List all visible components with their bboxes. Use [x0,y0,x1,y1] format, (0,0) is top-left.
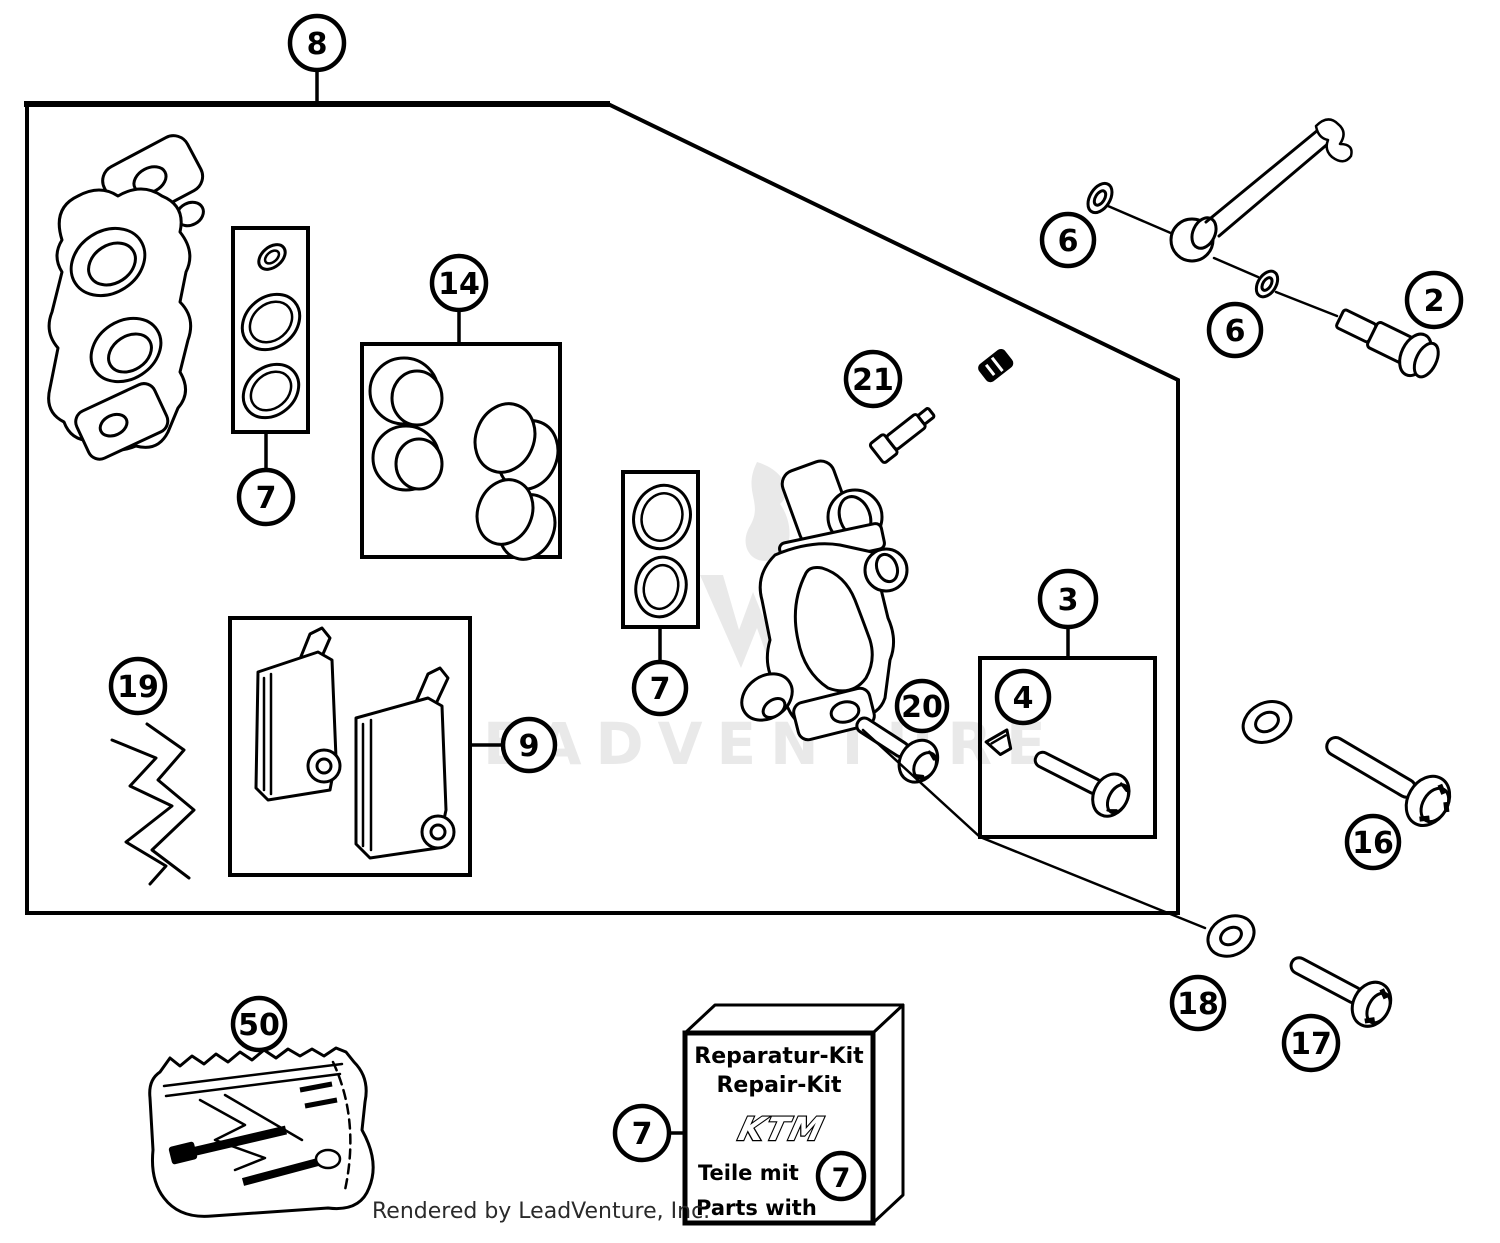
svg-text:7: 7 [832,1163,851,1194]
callout-2[interactable]: 2 [1407,273,1461,327]
callout-7-kit-badge: 7 [818,1153,864,1199]
kit-title-de: Reparatur-Kit [694,1044,864,1069]
svg-text:7: 7 [256,481,277,516]
callout-3[interactable]: 3 [1040,571,1096,627]
bleed-valve-drawing [869,402,938,463]
svg-text:6: 6 [1225,314,1246,349]
callout-19[interactable]: 19 [111,659,165,713]
callout-17[interactable]: 17 [1284,1016,1338,1070]
callout-16[interactable]: 16 [1347,816,1399,868]
callout-9[interactable]: 9 [503,719,555,771]
piston-box-14 [362,344,568,568]
svg-text:14: 14 [438,267,480,302]
seal-box-7-center [623,472,699,627]
svg-text:20: 20 [901,690,943,725]
seal-box-7-left [231,228,311,432]
watermark-text: EADVENTURE [483,710,1060,778]
credit-text: Rendered by LeadVenture, Inc. [372,1199,710,1224]
callout-7-left[interactable]: 7 [239,470,293,524]
svg-text:19: 19 [117,670,159,705]
svg-text:8: 8 [307,27,328,62]
callout-18[interactable]: 18 [1172,977,1224,1029]
valve-cap-drawing [977,347,1015,383]
callout-6-lower[interactable]: 6 [1209,304,1261,356]
callout-21[interactable]: 21 [846,352,900,406]
brake-pad-box-9 [230,618,470,875]
svg-text:9: 9 [519,729,540,764]
washer-18-drawing [1201,908,1261,964]
brake-caliper-exploded-diagram: EADVENTURE [0,0,1500,1243]
bolt-16-drawing [1315,720,1460,835]
kit-note-en: Parts with [696,1196,817,1220]
ktm-logo: KTM [735,1110,829,1147]
group-8-border [24,104,1178,913]
svg-text:17: 17 [1290,1027,1332,1062]
svg-text:2: 2 [1424,284,1445,319]
brake-pad-left [256,628,340,800]
pin-assembly-drawing [1083,119,1445,384]
svg-text:7: 7 [650,672,671,707]
callout-20[interactable]: 20 [897,681,947,731]
svg-text:4: 4 [1013,681,1034,716]
parts-bag-drawing [150,1048,373,1216]
parts-diagram-page: EADVENTURE [0,0,1500,1243]
svg-text:50: 50 [238,1008,280,1043]
svg-text:7: 7 [632,1117,653,1152]
kit-title-en: Repair-Kit [716,1073,842,1098]
brake-pad-right [356,668,454,858]
svg-text:18: 18 [1177,987,1219,1022]
callout-7-kit[interactable]: 7 [615,1106,669,1160]
kit-note-de: Teile mit [698,1161,799,1185]
washer-upper-drawing [1236,693,1298,750]
callout-50[interactable]: 50 [233,998,285,1050]
repair-kit-box: Reparatur-Kit Repair-Kit KTM Teile mit P… [685,1005,903,1223]
callout-14[interactable]: 14 [432,256,486,310]
svg-text:3: 3 [1058,583,1079,618]
callout-6-upper[interactable]: 6 [1042,214,1094,266]
pad-spring-drawing [112,724,194,884]
callout-8[interactable]: 8 [290,16,344,70]
caliper-bracket-drawing [49,130,209,463]
svg-text:6: 6 [1058,224,1079,259]
callout-4[interactable]: 4 [997,671,1049,723]
callout-7-center[interactable]: 7 [634,662,686,714]
svg-text:21: 21 [852,363,894,398]
svg-text:16: 16 [1352,826,1394,861]
